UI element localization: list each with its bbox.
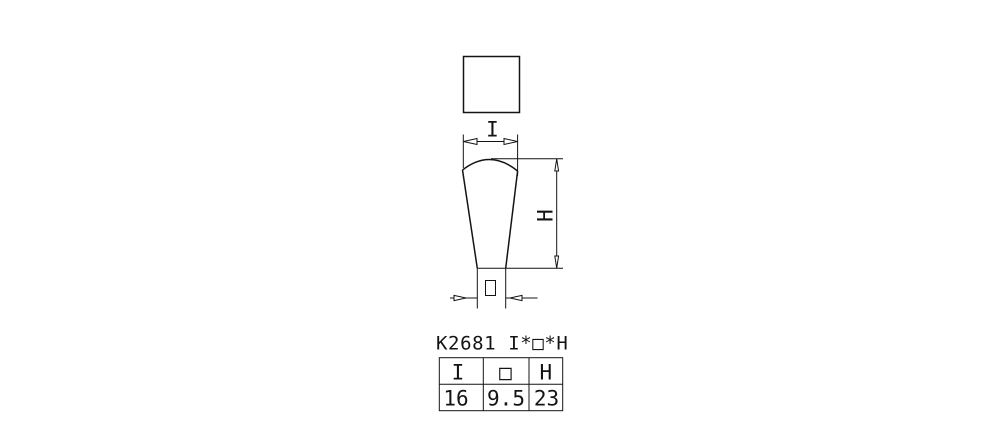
knob-left-side — [463, 170, 478, 268]
arrowhead-right-icon — [504, 139, 517, 145]
knob-top-arc — [463, 159, 518, 171]
cad-drawing-canvas: I H K2681 I*□*H I — [0, 0, 1000, 445]
table-header-I: I — [452, 361, 465, 385]
table-value-square: 9.5 — [487, 387, 525, 411]
dimension-height-label: H — [534, 209, 558, 222]
table-value-H: 23 — [534, 387, 559, 411]
arrowhead-down-icon — [555, 256, 559, 268]
table-header-H: H — [539, 361, 552, 385]
knob-right-side — [506, 171, 518, 268]
part-number-label: K2681 I*□*H — [436, 333, 568, 355]
square-dimension-symbol — [486, 281, 496, 296]
arrowhead-left-icon — [464, 139, 478, 145]
top-view-square — [464, 57, 520, 113]
arrowhead-up-icon — [555, 159, 559, 171]
table-value-I: 16 — [443, 387, 468, 411]
table-header-square: □ — [499, 361, 512, 385]
arrowhead-inward-left-icon — [510, 295, 522, 300]
dimension-width-label: I — [486, 118, 499, 142]
arrowhead-inward-right-icon — [454, 295, 466, 300]
dimensions-table: I □ H 16 9.5 23 — [439, 358, 562, 411]
technical-drawing: I H K2681 I*□*H I — [0, 0, 1000, 445]
